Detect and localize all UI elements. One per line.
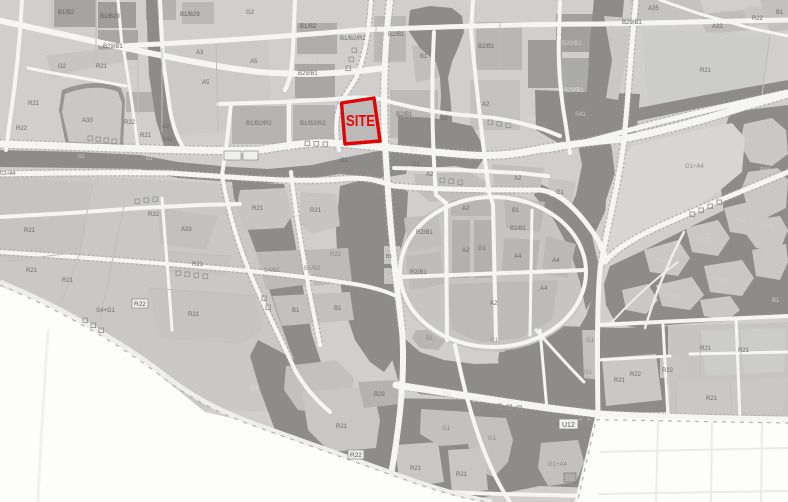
svg-text:B29/B1: B29/B1 xyxy=(564,88,584,94)
svg-text:R22: R22 xyxy=(752,16,764,22)
svg-text:A4: A4 xyxy=(514,254,522,260)
svg-text:G1: G1 xyxy=(478,246,487,252)
svg-text:R21: R21 xyxy=(736,218,748,224)
svg-text:B29/B1: B29/B1 xyxy=(298,71,318,77)
svg-text:B1: B1 xyxy=(776,10,784,16)
svg-text:G1: G1 xyxy=(442,426,451,432)
svg-text:R21: R21 xyxy=(700,238,712,244)
svg-text:R21: R21 xyxy=(336,424,348,430)
svg-text:B29/B1: B29/B1 xyxy=(622,20,642,26)
svg-text:B1/B2: B1/B2 xyxy=(304,266,321,272)
svg-text:R21: R21 xyxy=(670,294,682,300)
svg-text:B1/B2: B1/B2 xyxy=(58,10,75,16)
svg-text:R22: R22 xyxy=(134,301,146,308)
svg-text:B1: B1 xyxy=(386,254,392,260)
svg-text:R22: R22 xyxy=(16,126,28,132)
svg-text:R21: R21 xyxy=(252,206,264,212)
svg-text:A2: A2 xyxy=(462,206,470,212)
svg-text:G1+A4: G1+A4 xyxy=(608,26,628,32)
svg-text:G1: G1 xyxy=(488,436,497,442)
svg-text:B1: B1 xyxy=(292,308,300,314)
svg-text:A2: A2 xyxy=(514,176,522,182)
svg-text:R21: R21 xyxy=(96,64,108,70)
svg-text:G1: G1 xyxy=(340,158,349,164)
svg-text:B1: B1 xyxy=(772,298,780,304)
svg-text:R21: R21 xyxy=(28,101,40,107)
svg-text:G1+A4: G1+A4 xyxy=(548,462,568,468)
svg-text:R21: R21 xyxy=(614,378,626,384)
svg-text:S4+G1: S4+G1 xyxy=(96,308,116,314)
svg-text:A2: A2 xyxy=(490,301,498,307)
svg-text:A2: A2 xyxy=(482,102,490,108)
svg-text:B2/B1: B2/B1 xyxy=(478,44,495,50)
svg-text:R21: R21 xyxy=(718,278,730,284)
svg-text:A5: A5 xyxy=(250,59,258,65)
svg-text:U12: U12 xyxy=(562,422,575,429)
svg-text:B2/B1: B2/B1 xyxy=(526,30,543,36)
svg-text:G1: G1 xyxy=(556,190,565,196)
svg-text:R21: R21 xyxy=(24,228,36,234)
svg-text:R21: R21 xyxy=(700,68,712,74)
svg-text:B1/B2/R2: B1/B2/R2 xyxy=(300,121,326,127)
svg-text:B1: B1 xyxy=(512,208,520,214)
svg-text:G1: G1 xyxy=(146,156,153,162)
svg-text:R21: R21 xyxy=(62,278,74,284)
svg-text:SITE: SITE xyxy=(346,113,375,130)
svg-text:A35: A35 xyxy=(648,6,659,12)
svg-text:G1+A4: G1+A4 xyxy=(685,164,705,170)
svg-text:A2: A2 xyxy=(440,116,448,122)
svg-text:R21: R21 xyxy=(700,346,712,352)
svg-text:B1/B2/R2: B1/B2/R2 xyxy=(340,36,366,42)
svg-text:A4: A4 xyxy=(540,286,548,292)
svg-text:R21: R21 xyxy=(760,168,772,174)
svg-text:R2/B1: R2/B1 xyxy=(416,230,433,236)
svg-text:A2: A2 xyxy=(462,248,470,254)
svg-text:R2/B1: R2/B1 xyxy=(410,270,427,276)
svg-text:R22: R22 xyxy=(148,212,160,218)
svg-text:B29: B29 xyxy=(374,392,385,398)
svg-text:R21: R21 xyxy=(410,466,422,472)
svg-text:B2/B1: B2/B1 xyxy=(510,226,527,232)
svg-text:A33: A33 xyxy=(181,227,192,233)
svg-text:G1: G1 xyxy=(490,338,499,344)
svg-text:A4: A4 xyxy=(552,258,560,264)
svg-text:A5: A5 xyxy=(202,80,210,86)
svg-text:R21: R21 xyxy=(330,252,342,258)
svg-text:B1/B29: B1/B29 xyxy=(100,14,120,20)
svg-text:B1/B29: B1/B29 xyxy=(180,12,200,18)
svg-text:R21: R21 xyxy=(188,312,200,318)
svg-text:R22: R22 xyxy=(350,452,362,459)
svg-text:R21: R21 xyxy=(738,348,750,354)
svg-text:S41: S41 xyxy=(575,112,586,118)
svg-text:R21: R21 xyxy=(310,208,322,214)
svg-text:B2/B1: B2/B1 xyxy=(396,112,413,118)
svg-text:A2: A2 xyxy=(426,172,434,178)
svg-text:B29/B1: B29/B1 xyxy=(296,58,316,64)
svg-text:G2: G2 xyxy=(58,64,67,70)
svg-text:A2: A2 xyxy=(162,124,170,130)
svg-text:G2: G2 xyxy=(246,10,255,16)
svg-text:A33: A33 xyxy=(712,24,723,30)
svg-text:G1: G1 xyxy=(78,154,85,160)
svg-text:B1: B1 xyxy=(420,54,428,60)
svg-text:G1: G1 xyxy=(584,370,593,376)
svg-text:R21: R21 xyxy=(706,396,718,402)
svg-text:R21: R21 xyxy=(140,133,152,139)
svg-text:A33: A33 xyxy=(82,118,93,124)
svg-text:B1: B1 xyxy=(426,336,434,342)
svg-text:B1/B2/R2: B1/B2/R2 xyxy=(246,121,272,127)
svg-text:R21: R21 xyxy=(762,224,774,230)
svg-text:G1: G1 xyxy=(444,392,453,398)
svg-text:B29/B1: B29/B1 xyxy=(562,41,582,47)
svg-text:R21: R21 xyxy=(192,262,204,268)
svg-text:B29/B1: B29/B1 xyxy=(103,44,123,50)
svg-text:A3: A3 xyxy=(196,50,204,56)
svg-text:G1: G1 xyxy=(472,398,481,404)
svg-text:S42: S42 xyxy=(162,137,173,143)
svg-text:G1: G1 xyxy=(586,338,595,344)
svg-text:R22: R22 xyxy=(124,120,136,126)
svg-text:G1: G1 xyxy=(410,148,419,154)
svg-text:G1: G1 xyxy=(412,162,421,168)
svg-text:R22: R22 xyxy=(662,368,674,374)
svg-text:R21: R21 xyxy=(656,258,668,264)
svg-text:S4/B1: S4/B1 xyxy=(264,268,281,274)
svg-text:R21: R21 xyxy=(26,268,38,274)
svg-text:G1: G1 xyxy=(528,116,537,122)
svg-text:B1: B1 xyxy=(334,306,342,312)
svg-text:R21: R21 xyxy=(456,472,468,478)
svg-text:G1: G1 xyxy=(250,386,259,392)
svg-text:R22: R22 xyxy=(630,372,642,378)
svg-text:B1/B2: B1/B2 xyxy=(300,24,317,30)
svg-text:G1+A4: G1+A4 xyxy=(0,171,16,177)
svg-text:B2/B1: B2/B1 xyxy=(388,32,405,38)
